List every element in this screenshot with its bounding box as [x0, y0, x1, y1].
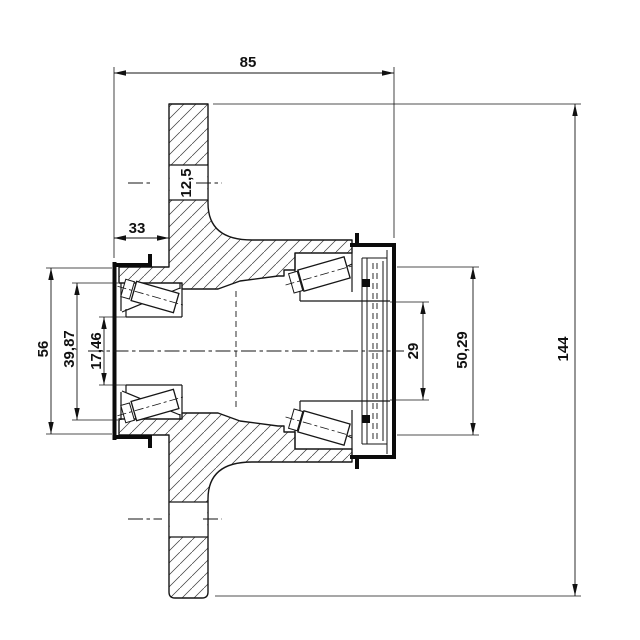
seal-lip-top	[362, 279, 370, 287]
seal-lip-bottom	[362, 415, 370, 423]
bolt-hole-bottom-clear	[170, 502, 207, 537]
encoder-seal-ring	[362, 250, 387, 454]
dim-29-label: 29	[405, 343, 422, 360]
dim-12-5-label: 12,5	[178, 168, 195, 197]
dimension-lines	[51, 73, 575, 596]
dim-144-label: 144	[555, 336, 572, 362]
dim-56-label: 56	[35, 341, 52, 358]
hub-body-bottom-section	[119, 413, 352, 598]
flange-bolt-hole-bottom	[169, 502, 208, 537]
technical-drawing-page: 85 33 12,5 56 39,87 17,46 29 50,29 144	[0, 0, 640, 640]
dim-39-87-label: 39,87	[61, 330, 78, 368]
dim-17-46-label: 17,46	[88, 332, 105, 370]
hub-bearing-section-drawing: 85 33 12,5 56 39,87 17,46 29 50,29 144	[0, 0, 640, 640]
hub-body-top-section	[119, 104, 352, 289]
dim-50-29-label: 50,29	[454, 331, 471, 369]
dim-33-label: 33	[129, 220, 146, 237]
dim-85-label: 85	[240, 54, 257, 71]
extension-lines	[46, 67, 581, 596]
